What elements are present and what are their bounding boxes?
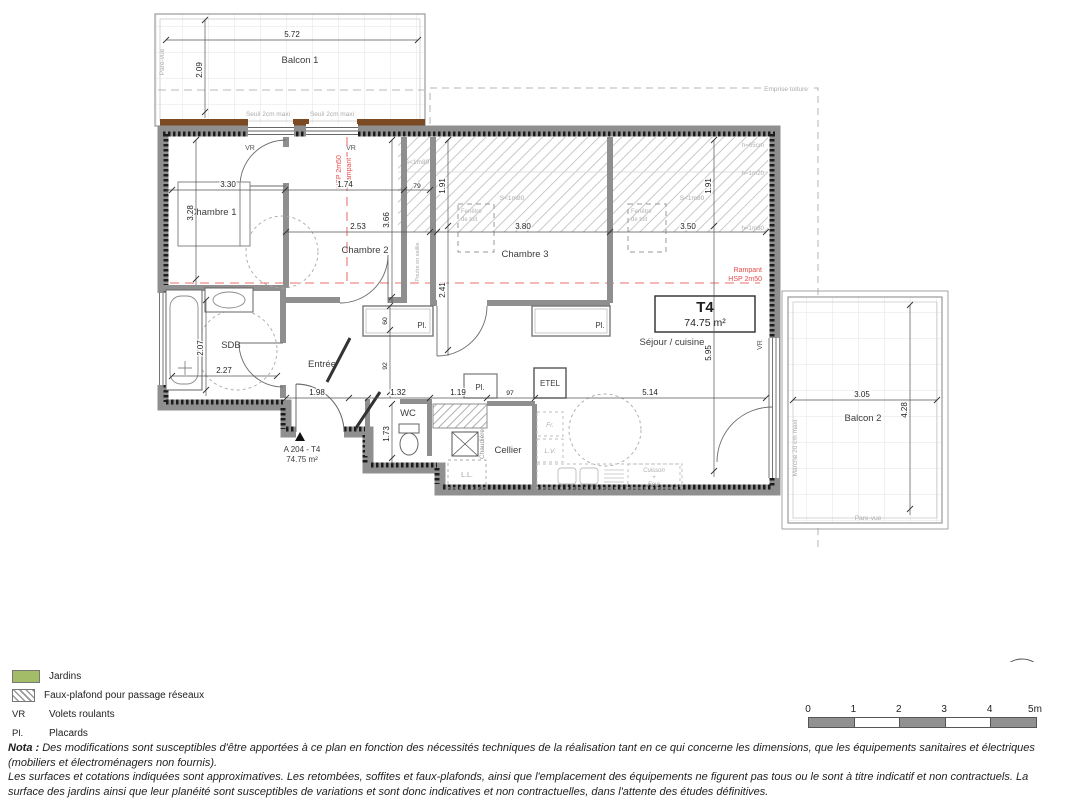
dim-79: 79: [413, 183, 421, 190]
room-label-balcon1: Balcon 1: [282, 55, 319, 66]
legend-vr-label: Volets roulants: [49, 709, 115, 720]
pare-vue-label-2: Pare-vue: [855, 515, 882, 522]
vr-label-1: VR: [245, 145, 255, 152]
seuil-label-2: Seuil 2cm maxi: [310, 111, 354, 118]
placard-3-label: Pl.: [475, 383, 484, 392]
dim-sejour-h: 5.95: [704, 345, 713, 361]
entrance-door-gap: [296, 426, 344, 438]
wall-c3-bottom-right: [487, 300, 610, 306]
legend-vr-abbr: VR: [12, 709, 49, 720]
room-label-etel: ETEL: [540, 379, 561, 388]
nota-line-3: Les surfaces et cotations indiquées sont…: [8, 771, 1028, 798]
scale-tick-1: 1: [851, 704, 857, 715]
wall-wc-right: [427, 399, 432, 456]
rampant-hsp-label-h: HSP 2m50: [728, 276, 762, 283]
wall-c2-bottom-right: [388, 297, 401, 303]
legend-faux-plafond-label: Faux-plafond pour passage réseaux: [44, 690, 204, 701]
poutre-label: Poutre en saillie: [415, 242, 421, 281]
unit-area-label: 74.75 m²: [684, 317, 726, 329]
legend-jardins-label: Jardins: [49, 671, 81, 682]
north-circle: [999, 659, 1045, 662]
dim-chambre1-h: 3.28: [186, 205, 195, 221]
scale-bar-ticks: 0 1 2 3 4 5m: [800, 704, 1040, 717]
dim-198: 1.98: [309, 388, 325, 397]
dim-119: 1.19: [450, 388, 466, 397]
wall-cellier-hatch-chunk: [433, 404, 487, 428]
scale-tick-4: 4: [987, 704, 993, 715]
dim-balcon2-h: 4.28: [900, 402, 909, 418]
dim-balcon1-h: 2.09: [195, 62, 204, 78]
wall-wc-top: [400, 399, 427, 404]
deck-strip-3: [357, 119, 425, 126]
dim-chambre2-w: 2.53: [350, 222, 366, 231]
dim-balcon1-w: 5.72: [284, 30, 300, 39]
cooktop-label-3: Four: [648, 482, 661, 488]
wall-c2-strip-left: [401, 137, 407, 303]
wall-kitchen-top: [487, 401, 535, 406]
dim-sdb-w: 2.27: [216, 366, 232, 375]
legend-row-jardins: Jardins: [12, 668, 204, 685]
window-top-2: [306, 124, 358, 138]
deck-strip-1: [160, 119, 248, 126]
h120-label: h=1m20: [741, 170, 764, 177]
toilet-bowl: [400, 433, 418, 455]
room-label-chambre2: Chambre 2: [342, 245, 389, 256]
dim-sejour-w: 3.50: [680, 222, 696, 231]
nota-prefix: Nota :: [8, 742, 39, 754]
dim-chambre1-w: 3.30: [220, 180, 236, 189]
roof-window-2-label-a: Fenêtre: [631, 209, 652, 215]
placard-2-label: Pl.: [595, 321, 604, 330]
s1m80-label-2: S<1m80: [500, 195, 525, 202]
wall-c2-bottom-left: [286, 297, 340, 303]
scale-seg-3: [900, 718, 945, 727]
wall-c3-bottom-left: [430, 300, 437, 306]
scale-tick-5: 5m: [1028, 704, 1042, 715]
window-door-right: [766, 338, 779, 478]
scale-seg-2: [854, 718, 901, 727]
wall-c2-strip-right: [430, 137, 436, 303]
roof-window-2-label-b: de toit: [631, 217, 648, 223]
floor-plan-svg: Balcon 1 Pare-vue Seuil 2cm maxi Seuil 2…: [0, 0, 1072, 662]
dim-sdb-h: 2.07: [196, 340, 205, 356]
wall-c1-c2-top: [283, 137, 289, 147]
cooktop-label-2: +: [652, 475, 656, 481]
unit-type-label: T4: [696, 299, 714, 316]
dim-174: 1.74: [337, 180, 353, 189]
scale-seg-1: [809, 718, 854, 727]
room-label-chambre1: Chambre 1: [190, 207, 237, 218]
dim-chambre3-w: 3.80: [515, 222, 531, 231]
room-label-cellier: Cellier: [495, 445, 522, 456]
north-arrow: N: [999, 659, 1045, 662]
lave-linge-label: L.L.: [461, 472, 473, 479]
nota-line-2: (mobiliers et électroménagers non fourni…: [8, 757, 217, 769]
s1m80-label-1: S<1m80: [405, 159, 430, 166]
dim-wc-h: 1.73: [382, 426, 391, 442]
wall-cellier-sejour: [532, 404, 537, 490]
dim-balcon2-w: 3.05: [854, 390, 870, 399]
scale-bar: 0 1 2 3 4 5m: [800, 704, 1040, 728]
cooktop-label-1: Cuisson: [643, 468, 665, 474]
scale-bar-segments: [808, 717, 1037, 728]
room-label-entree: Entrée: [308, 359, 336, 370]
scale-tick-2: 2: [896, 704, 902, 715]
s1m80-label-3: S<1m80: [680, 195, 705, 202]
nota-text: Nota : Des modifications sont susceptibl…: [8, 741, 1066, 800]
legend: Jardins Faux-plafond pour passage réseau…: [12, 668, 204, 744]
dim-191-right: 1.91: [704, 178, 713, 194]
dishwasher-label: L.V.: [544, 448, 555, 455]
legend-pl-abbr: Pl.: [12, 728, 49, 739]
dim-97: 97: [506, 390, 514, 397]
chaudiere-label: Chaudière: [479, 429, 486, 459]
room-label-chambre3: Chambre 3: [502, 249, 549, 260]
dim-60: 60: [382, 317, 389, 325]
room-label-balcon2: Balcon 2: [845, 413, 882, 424]
dim-191-left: 1.91: [438, 178, 447, 194]
bathtub: [166, 290, 202, 390]
legend-row-pl: Pl. Placards: [12, 725, 204, 742]
roof-window-1-label-a: Fenêtre: [461, 209, 482, 215]
h65-label: h=65cm: [742, 142, 764, 149]
window-top-1: [248, 124, 294, 138]
unit-ref-label: A 204 - T4: [284, 445, 321, 454]
seuil-label-1: Seuil 2cm maxi: [246, 111, 290, 118]
legend-row-faux-plafond: Faux-plafond pour passage réseaux: [12, 687, 204, 704]
balcony-2-deck: [788, 297, 942, 523]
pare-vue-label-1: Pare-vue: [159, 48, 166, 75]
room-label-sejour: Séjour / cuisine: [640, 337, 705, 348]
balcony-2: Balcon 2 Pare-vue Marche 20 cm maxi: [782, 291, 948, 529]
legend-row-vr: VR Volets roulants: [12, 706, 204, 723]
room-label-sdb: SDB: [221, 340, 241, 351]
scale-seg-4: [945, 718, 992, 727]
nota-line-1: Des modifications sont susceptibles d'êt…: [42, 742, 1035, 754]
marche-label: Marche 20 cm maxi: [792, 420, 799, 477]
dim-chambre2-h: 3.66: [382, 212, 391, 228]
toilet-tank: [399, 424, 419, 433]
dim-514: 5.14: [642, 388, 658, 397]
wall-sdb-right-top: [280, 288, 286, 343]
floor-plan-page: Balcon 1 Pare-vue Seuil 2cm maxi Seuil 2…: [0, 0, 1072, 800]
dim-241: 2.41: [438, 282, 447, 298]
roof-window-1-label-b: de toit: [461, 217, 478, 223]
vr-label-3: VR: [757, 340, 764, 350]
rampant-label-h: Rampant: [734, 267, 762, 274]
vr-label-2: VR: [346, 145, 356, 152]
scale-tick-0: 0: [805, 704, 811, 715]
dim-92: 92: [382, 362, 389, 370]
scale-seg-5: [991, 718, 1036, 727]
unit-ref-area: 74.75 m²: [286, 455, 318, 464]
dim-wc-w: 1.32: [390, 388, 406, 397]
fridge-label: Fr.: [546, 422, 554, 429]
wall-c3-sejour: [607, 137, 613, 303]
legend-pl-label: Placards: [49, 728, 88, 739]
faux-plafond-swatch: [12, 689, 35, 702]
wall-c1-c2: [283, 183, 289, 288]
emprise-toiture-label: Emprise toiture: [764, 86, 808, 93]
scale-tick-3: 3: [941, 704, 947, 715]
room-label-wc: WC: [400, 408, 416, 419]
h180-label: h=1m80: [741, 225, 764, 232]
jardins-swatch: [12, 670, 40, 683]
unit-area-box: T4 74.75 m²: [655, 296, 755, 332]
placard-1-label: Pl.: [417, 321, 426, 330]
